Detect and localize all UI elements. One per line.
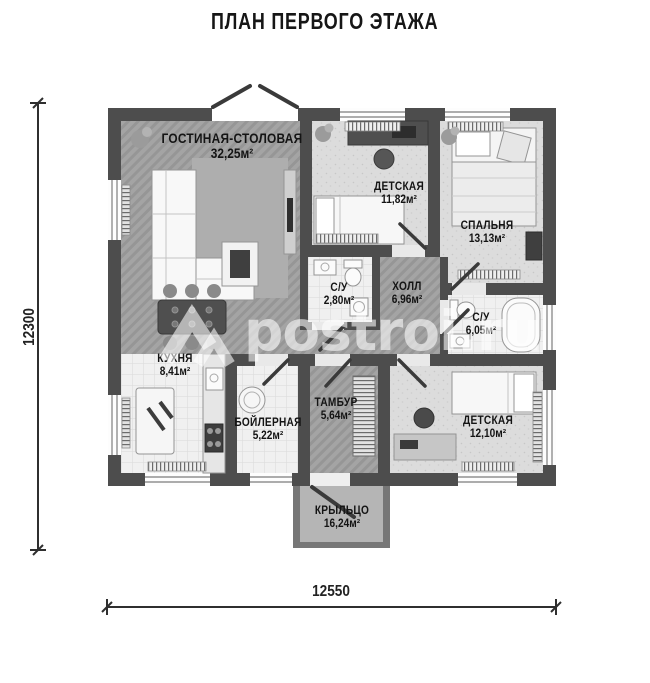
- dimension-bottom-label: 12550: [312, 583, 350, 601]
- room-label-bathroom-small: С/У 2,80м²: [324, 282, 355, 308]
- french-door-leaf: [260, 86, 297, 107]
- room-label-hall: ХОЛЛ 6,96м²: [392, 281, 423, 307]
- room-label-kitchen: КУХНЯ 8,41м²: [157, 353, 192, 379]
- window: [108, 180, 121, 240]
- window: [458, 473, 517, 486]
- kitchen-counter: [203, 354, 225, 473]
- french-door-opening: [212, 108, 298, 121]
- tv-unit: [284, 170, 296, 254]
- window: [543, 390, 556, 465]
- room-label-vestibule: ТАМБУР 5,64м²: [315, 397, 358, 423]
- room-label-boiler-room: БОЙЛЕРНАЯ 5,22м²: [234, 417, 301, 443]
- boiler: [239, 387, 265, 413]
- room-label-porch: КРЫЛЬЦО 16,24м²: [315, 505, 369, 531]
- nightstand: [526, 232, 542, 260]
- room-label-kids-room-2: ДЕТСКАЯ 12,10м²: [463, 415, 513, 441]
- window: [445, 108, 510, 121]
- window: [543, 305, 556, 350]
- bed: [452, 372, 536, 414]
- double-bed: [452, 128, 536, 226]
- window: [108, 395, 121, 455]
- bathtub: [502, 298, 540, 352]
- plan-title: ПЛАН ПЕРВОГО ЭТАЖА: [0, 8, 650, 35]
- room-label-living-dining: ГОСТИНАЯ-СТОЛОВАЯ 32,25м²: [162, 131, 303, 162]
- floor-plan-page: ПЛАН ПЕРВОГО ЭТАЖА 12300 12550 ГОСТИНАЯ-…: [0, 0, 650, 683]
- window: [250, 473, 292, 486]
- entry-door-opening: [310, 473, 350, 486]
- room-label-bathroom-large: С/У 6,05м²: [466, 312, 497, 338]
- coffee-table: [222, 242, 258, 286]
- floor-plan-graphic: [0, 0, 650, 683]
- window: [340, 108, 405, 121]
- french-door-leaf: [213, 86, 250, 107]
- room-label-bedroom: СПАЛЬНЯ 13,13м²: [461, 220, 514, 246]
- sink: [314, 260, 336, 275]
- dining-table: [158, 284, 226, 350]
- dimension-left-label: 12300: [21, 308, 39, 346]
- kitchen-island: [136, 388, 174, 454]
- window: [145, 473, 210, 486]
- room-label-kids-room-1: ДЕТСКАЯ 11,82м²: [374, 181, 424, 207]
